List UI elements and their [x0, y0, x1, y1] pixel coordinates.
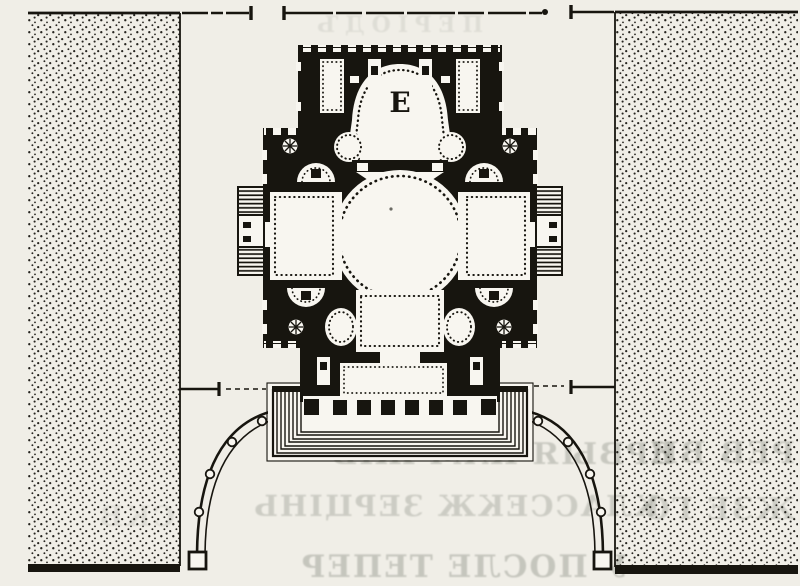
- left-garden-plot: [28, 13, 180, 572]
- atrium-gate-pier-left: [189, 552, 206, 569]
- atrium-gate-pier-right: [594, 552, 611, 569]
- side-porch-right: [535, 186, 563, 276]
- right-garden-plot: [615, 12, 798, 574]
- portico-colonnade: [303, 396, 497, 418]
- spiral-stair-icon: [289, 320, 304, 335]
- spiral-stair-icon: [503, 139, 518, 154]
- spiral-stair-icon: [497, 320, 512, 335]
- scanned-page: ПЕРІОДЪ ЕРВЫЯ КАМ ЖІВ КЛАССЕКЖ ЗЕРЦІНЬ У…: [0, 0, 800, 586]
- altar-mark: E: [389, 86, 410, 119]
- side-gate-left: [180, 382, 266, 396]
- central-dome: [333, 170, 467, 304]
- spiral-stair-icon: [283, 139, 298, 154]
- floor-plan-drawing: E: [0, 0, 800, 586]
- side-gate-right: [534, 380, 615, 394]
- precinct-wall-top: [182, 5, 614, 20]
- side-porch-left: [237, 186, 265, 276]
